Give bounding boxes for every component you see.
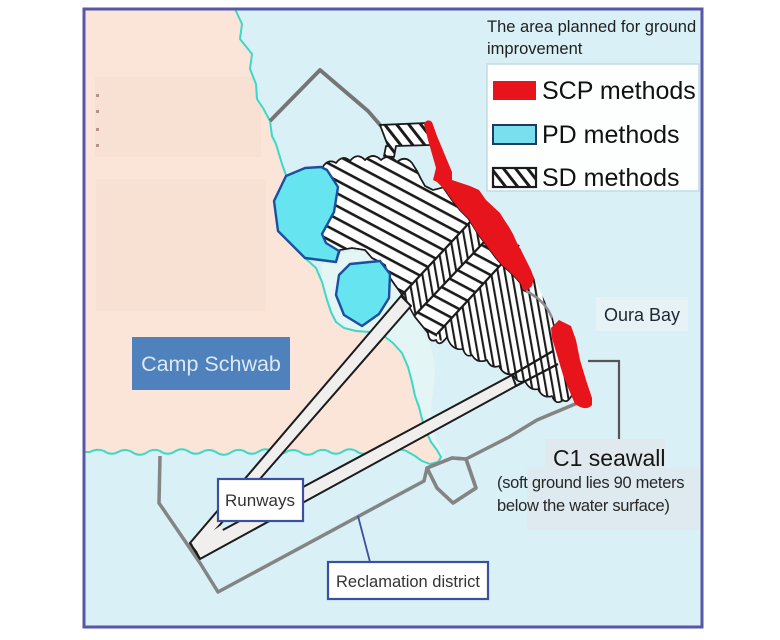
svg-text:SCP methods: SCP methods xyxy=(542,77,696,105)
svg-text:(soft ground lies 90 meters: (soft ground lies 90 meters xyxy=(497,474,684,492)
svg-text:SD methods: SD methods xyxy=(542,164,680,192)
svg-text:Reclamation district: Reclamation district xyxy=(336,573,480,591)
svg-text:The area planned for ground: The area planned for ground xyxy=(487,18,696,36)
svg-text:Oura Bay: Oura Bay xyxy=(604,305,680,325)
svg-text:Runways: Runways xyxy=(225,491,295,510)
svg-text:below the water surface): below the water surface) xyxy=(497,497,670,515)
svg-text:Camp Schwab: Camp Schwab xyxy=(141,352,281,376)
svg-text:C1 seawall: C1 seawall xyxy=(553,445,666,471)
svg-text:PD methods: PD methods xyxy=(542,121,680,149)
svg-text:improvement: improvement xyxy=(487,40,583,58)
